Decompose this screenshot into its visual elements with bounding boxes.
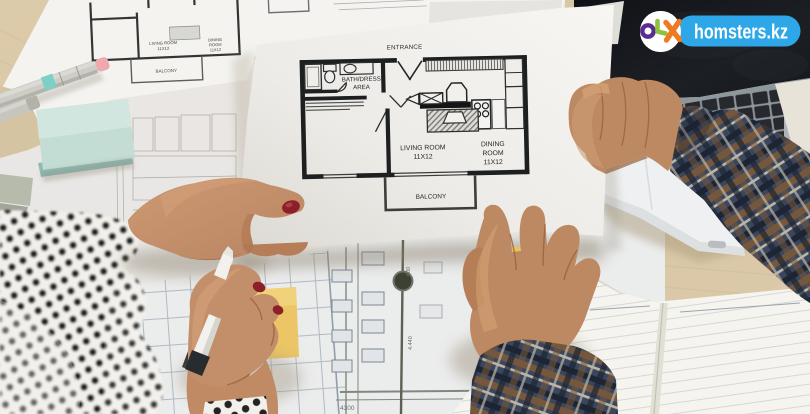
svg-text:BATH/DRESS: BATH/DRESS xyxy=(342,76,381,84)
svg-text:homsters.kz: homsters.kz xyxy=(694,22,788,44)
svg-text:BALCONY: BALCONY xyxy=(156,68,178,74)
svg-text:4300: 4300 xyxy=(340,405,355,412)
svg-text:ROOM: ROOM xyxy=(482,150,504,157)
svg-text:BALCONY: BALCONY xyxy=(416,193,447,201)
svg-text:LIVING ROOM: LIVING ROOM xyxy=(400,144,446,152)
svg-text:11X12: 11X12 xyxy=(210,47,222,53)
svg-text:DINING: DINING xyxy=(481,141,505,149)
svg-text:600: 600 xyxy=(406,267,412,276)
svg-text:11X12: 11X12 xyxy=(413,153,433,160)
svg-text:11X12: 11X12 xyxy=(157,46,170,52)
svg-text:11X12: 11X12 xyxy=(484,159,504,166)
svg-text:AREA: AREA xyxy=(353,84,371,91)
svg-text:4.440: 4.440 xyxy=(408,336,414,350)
svg-text:ENTRANCE: ENTRANCE xyxy=(387,44,423,52)
